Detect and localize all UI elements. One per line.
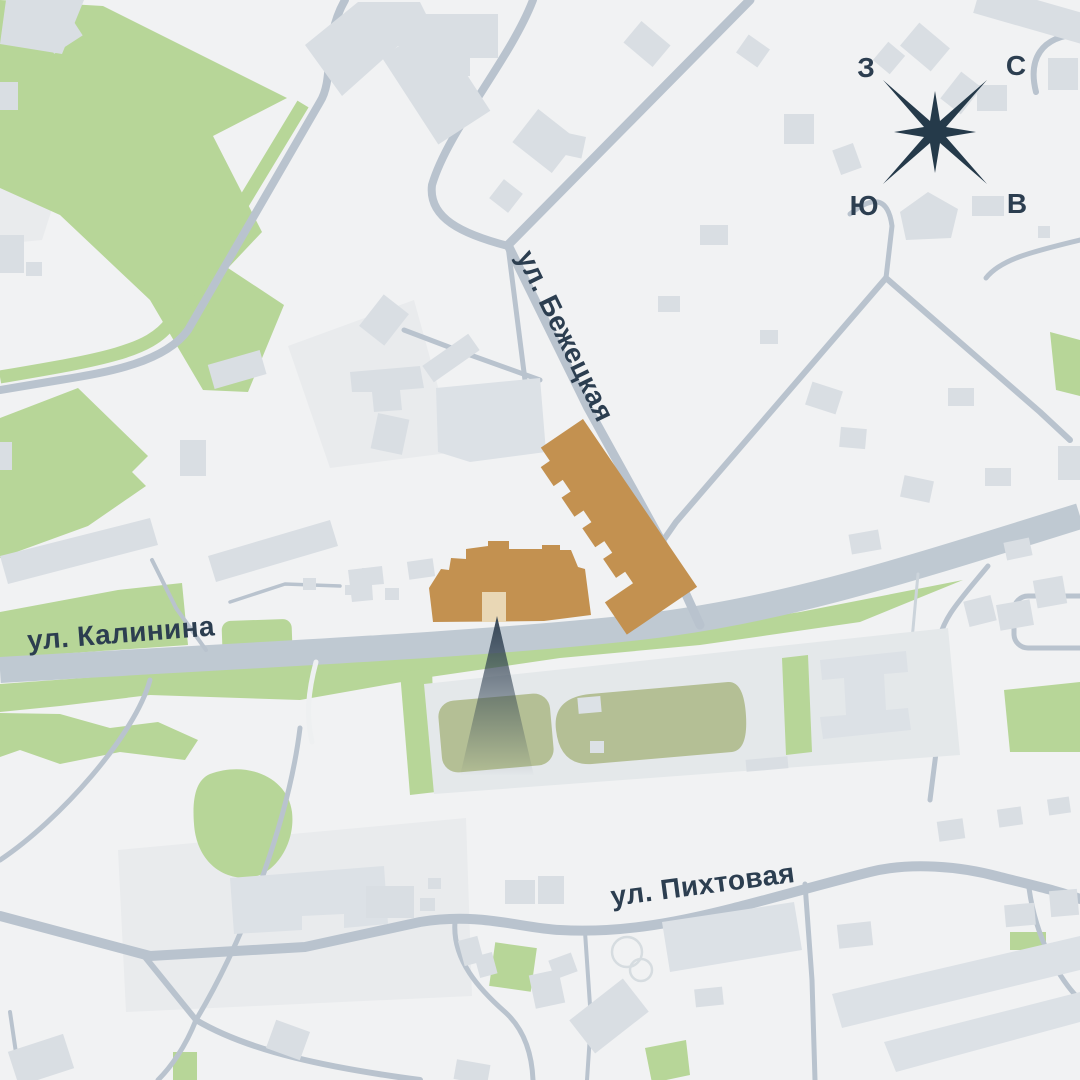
compass-label-north: С	[1006, 50, 1026, 81]
compass-label-west: З	[857, 52, 875, 83]
map-canvas: З С Ю В ул. Бежецкая ул. Калинина ул. Пи…	[0, 0, 1080, 1080]
highlighted-entrance	[482, 592, 506, 622]
compass-label-east: В	[1007, 188, 1027, 219]
map-stage: З С Ю В ул. Бежецкая ул. Калинина ул. Пи…	[0, 0, 1080, 1080]
compass-label-south: Ю	[850, 190, 879, 221]
compass-star-icon	[883, 80, 987, 184]
